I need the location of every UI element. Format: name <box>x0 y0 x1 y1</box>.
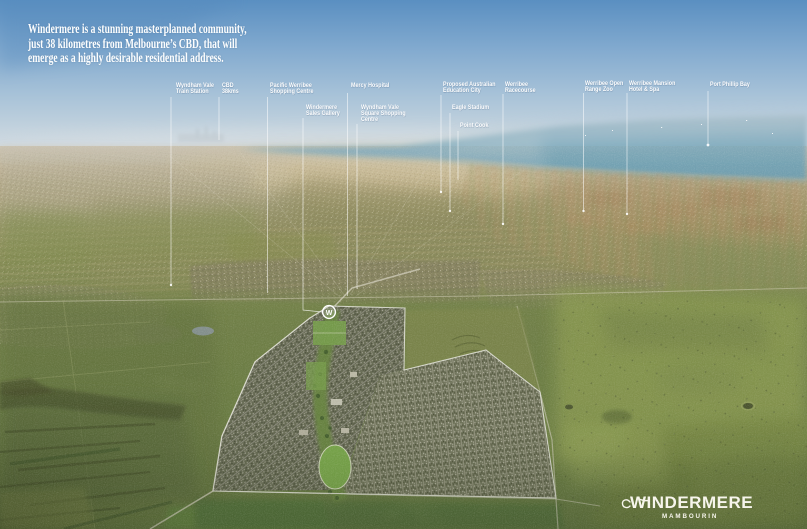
svg-text:W: W <box>326 310 333 317</box>
